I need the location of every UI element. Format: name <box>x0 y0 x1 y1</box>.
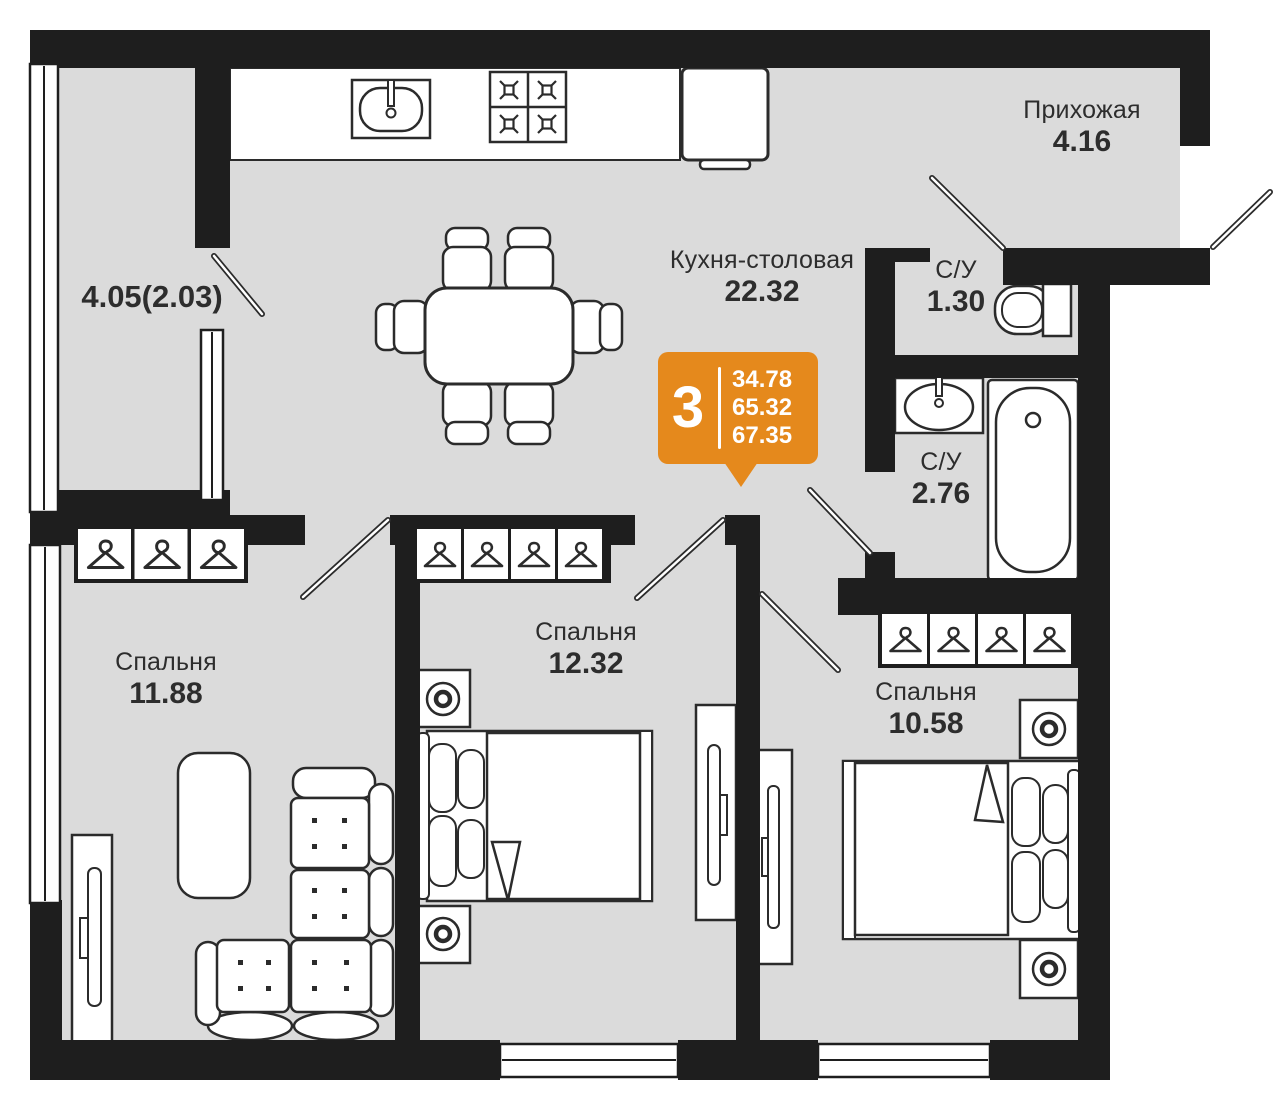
room-name: Спальня <box>875 678 977 706</box>
tv-stand-bedroom-2 <box>696 705 736 920</box>
wardrobe-bedroom-2 <box>413 525 611 583</box>
window-bedroom-1 <box>30 545 60 903</box>
badge-pointer <box>724 462 758 487</box>
tv-stand-bedroom-1 <box>72 835 112 1043</box>
wall <box>736 515 760 1080</box>
balcony-glazing <box>30 64 58 512</box>
stove-icon <box>490 72 566 142</box>
window-bedroom-2 <box>500 1044 678 1077</box>
room-label-hallway: Прихожая 4.16 <box>1023 96 1140 159</box>
room-name: Спальня <box>535 618 637 646</box>
wall <box>838 578 1078 615</box>
room-name: Прихожая <box>1023 96 1140 124</box>
room-area: 1.30 <box>927 285 985 319</box>
window-bedroom-3 <box>818 1044 990 1077</box>
floor-plan: Прихожая 4.16 Кухня-столовая 22.32 С/У 1… <box>0 0 1280 1110</box>
room-label-balcony: 4.05(2.03) <box>81 280 222 315</box>
toilet-icon <box>995 284 1071 336</box>
nightstand-bedroom-2-top <box>416 670 470 727</box>
room-label-bathroom-large: С/У 2.76 <box>912 448 970 511</box>
window-kitchen-balcony <box>201 330 223 500</box>
kitchen-counter <box>230 68 680 160</box>
wall <box>1003 248 1210 285</box>
door-entrance <box>1213 192 1270 247</box>
bathtub-icon <box>988 380 1078 580</box>
room-label-bedroom-3: Спальня 10.58 <box>875 678 977 741</box>
fridge-icon <box>682 68 768 169</box>
apartment-info-badge: 3 34.78 65.32 67.35 <box>658 352 818 464</box>
wall <box>1078 285 1110 1080</box>
wall <box>678 1040 818 1080</box>
room-label-bathroom-small: С/У 1.30 <box>927 256 985 319</box>
tv-stand-bedroom-3 <box>758 750 792 964</box>
room-name: Кухня-столовая <box>670 246 854 274</box>
nightstand-bedroom-2-bottom <box>416 906 470 963</box>
nightstand-bedroom-3-bottom <box>1020 940 1078 998</box>
table-bedroom-1 <box>178 753 250 898</box>
room-area: 2.76 <box>912 477 970 511</box>
room-area: 4.05(2.03) <box>81 280 222 315</box>
wall <box>395 515 420 1080</box>
room-area: 11.88 <box>115 677 217 711</box>
bed-bedroom-3 <box>843 761 1080 939</box>
area-total: 67.35 <box>732 422 818 450</box>
badge-areas: 34.78 65.32 67.35 <box>721 366 818 450</box>
room-name: С/У <box>912 448 970 476</box>
wardrobe-bedroom-3 <box>878 610 1080 668</box>
room-area: 4.16 <box>1023 125 1140 159</box>
kitchen-sink-icon <box>352 80 430 138</box>
wall <box>30 1040 500 1080</box>
room-area: 10.58 <box>875 707 977 741</box>
wall <box>890 355 1078 378</box>
nightstand-bedroom-3-top <box>1020 700 1078 758</box>
area-main: 65.32 <box>732 394 818 422</box>
room-label-bedroom-2: Спальня 12.32 <box>535 618 637 681</box>
floor-plan-drawing <box>0 0 1280 1110</box>
bathroom-sink-icon <box>895 372 983 433</box>
wall <box>990 1040 1110 1080</box>
room-name: Спальня <box>115 648 217 676</box>
room-label-kitchen: Кухня-столовая 22.32 <box>670 246 854 309</box>
room-area: 12.32 <box>535 647 637 681</box>
wall <box>195 68 230 248</box>
rooms-count: 3 <box>658 379 718 437</box>
wall <box>30 30 1210 68</box>
bed-bedroom-2 <box>417 731 652 901</box>
room-label-bedroom-1: Спальня 11.88 <box>115 648 217 711</box>
room-area: 22.32 <box>670 275 854 309</box>
wardrobe-bedroom-1 <box>74 525 248 583</box>
wall <box>1180 68 1210 146</box>
room-name: С/У <box>927 256 985 284</box>
area-living: 34.78 <box>732 366 818 394</box>
